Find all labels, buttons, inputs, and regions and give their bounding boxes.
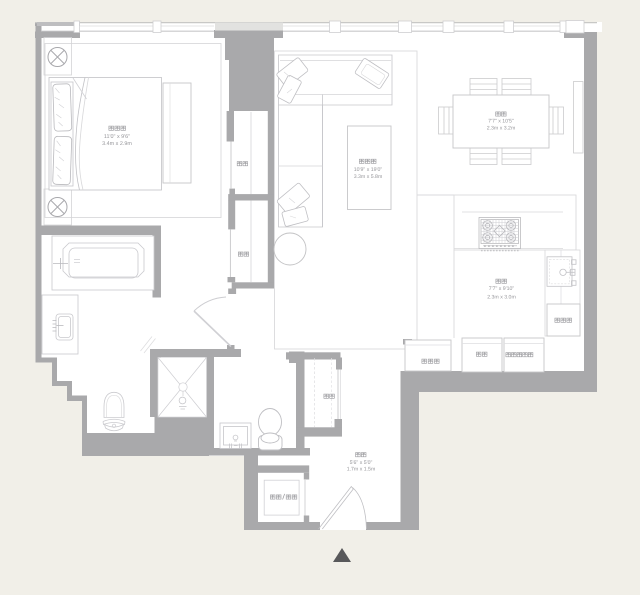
svg-text:7'7" x 9'10": 7'7" x 9'10" xyxy=(489,286,515,292)
svg-text:2.3m x 3.0m: 2.3m x 3.0m xyxy=(487,295,516,301)
svg-text:11'0" x 9'6": 11'0" x 9'6" xyxy=(104,134,130,140)
svg-text:10'9" x 19'0": 10'9" x 19'0" xyxy=(354,167,383,173)
svg-text:5'6" x 5'0": 5'6" x 5'0" xyxy=(350,460,373,466)
svg-text:3.4m x 2.9m: 3.4m x 2.9m xyxy=(102,141,132,147)
svg-text:7'7" x 10'5": 7'7" x 10'5" xyxy=(488,118,514,124)
svg-text:1.7m x 1.5m: 1.7m x 1.5m xyxy=(347,467,376,473)
svg-text:2.3m x 3.2m: 2.3m x 3.2m xyxy=(487,126,516,132)
svg-text:3.3m x 5.8m: 3.3m x 5.8m xyxy=(354,174,383,180)
